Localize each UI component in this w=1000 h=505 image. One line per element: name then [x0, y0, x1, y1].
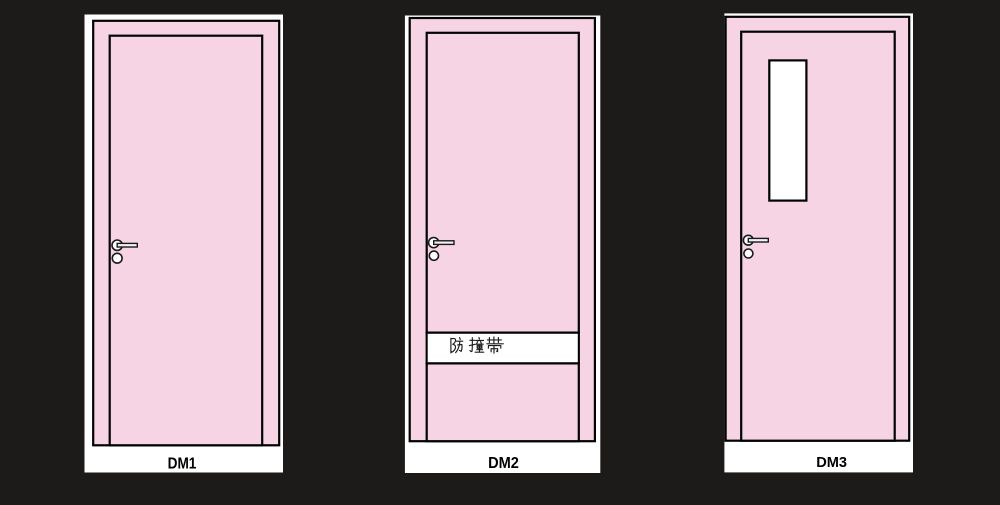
svg-text:DM1: DM1 [168, 456, 197, 473]
svg-text:DM3: DM3 [816, 454, 847, 471]
svg-text:DM2: DM2 [488, 455, 519, 472]
